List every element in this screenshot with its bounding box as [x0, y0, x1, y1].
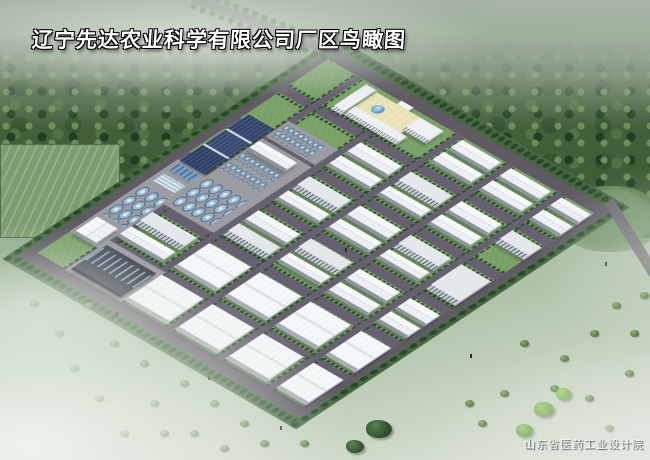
field-bush [140, 360, 149, 367]
field-bush [150, 400, 159, 407]
field-bush [465, 400, 474, 407]
field-bush [95, 395, 104, 402]
field-bush [560, 355, 569, 362]
field-bush [260, 440, 269, 447]
field-bush [640, 292, 649, 299]
field-bush [210, 400, 219, 407]
field-bush [30, 300, 39, 307]
field-bush [605, 425, 614, 432]
tree [556, 388, 571, 400]
pedestrian-figure [280, 426, 282, 430]
rendering-title: 辽宁先达农业科学有限公司厂区鸟瞰图 [31, 24, 593, 54]
tree [366, 420, 392, 438]
field-bush [110, 340, 119, 347]
tree [346, 440, 364, 453]
field-bush [55, 330, 64, 337]
tree [534, 402, 554, 417]
field-bush [240, 420, 249, 427]
pedestrian-figure [605, 262, 607, 266]
design-institute-credit: 山东省医药工业设计院 [524, 436, 644, 452]
field-bush [625, 370, 634, 377]
field-bush [120, 430, 129, 437]
field-bush [160, 430, 169, 437]
field-bush [190, 430, 199, 437]
field-bush [630, 330, 639, 337]
field-bush [585, 395, 594, 402]
field-bush [612, 302, 621, 309]
field-bush [180, 380, 189, 387]
field-bush [478, 420, 487, 427]
field-bush [70, 365, 79, 372]
field-bush [590, 330, 599, 337]
factory-aerial-rendering: 辽宁先达农业科学有限公司厂区鸟瞰图 山东省医药工业设计院 [0, 0, 650, 460]
field-bush [520, 340, 529, 347]
field-bush [220, 445, 229, 452]
pedestrian-figure [470, 354, 472, 358]
field-bush [300, 440, 309, 447]
field-bush [550, 385, 559, 392]
field-bush [500, 390, 509, 397]
